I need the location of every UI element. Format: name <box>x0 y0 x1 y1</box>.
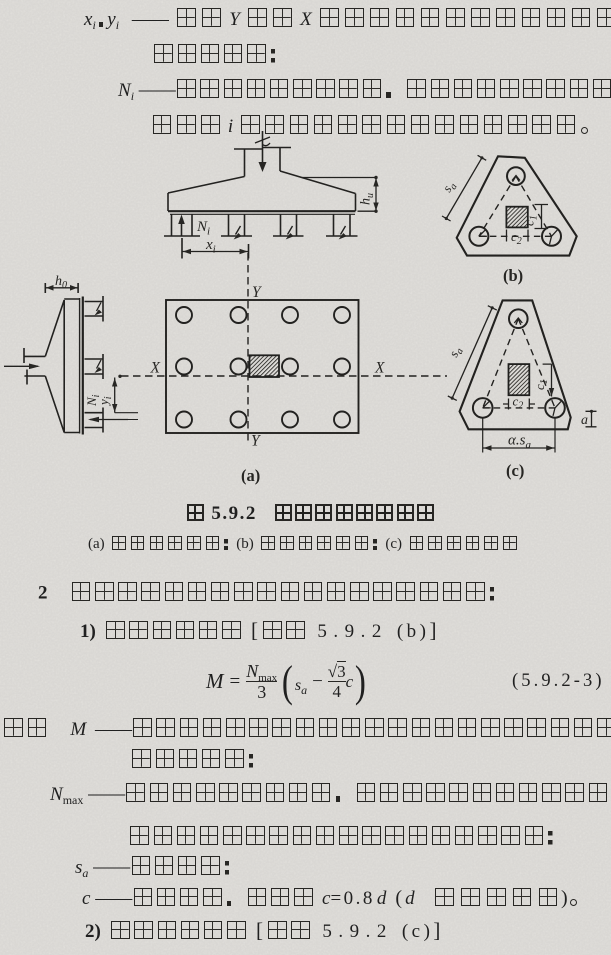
svg-text:(b): (b) <box>503 266 523 285</box>
svg-text:c2: c2 <box>511 229 522 247</box>
svg-text:sa: sa <box>439 178 460 196</box>
svg-text:α.sa: α.sa <box>508 433 531 452</box>
svg-text:(a): (a) <box>241 466 260 485</box>
svg-text:a: a <box>581 413 588 428</box>
svg-text:xi: xi <box>205 237 216 256</box>
svg-text:Ni: Ni <box>196 219 210 238</box>
svg-text:c1: c1 <box>532 379 550 390</box>
svg-text:sa: sa <box>446 344 467 361</box>
svg-text:Y: Y <box>252 284 262 301</box>
svg-text:Y: Y <box>251 433 261 450</box>
svg-text:(c): (c) <box>506 461 524 480</box>
svg-text:X: X <box>150 360 161 377</box>
svg-text:h0: h0 <box>55 274 67 291</box>
svg-text:X: X <box>374 360 385 377</box>
svg-text:hu: hu <box>359 193 377 205</box>
svg-text:c2: c2 <box>513 394 524 412</box>
